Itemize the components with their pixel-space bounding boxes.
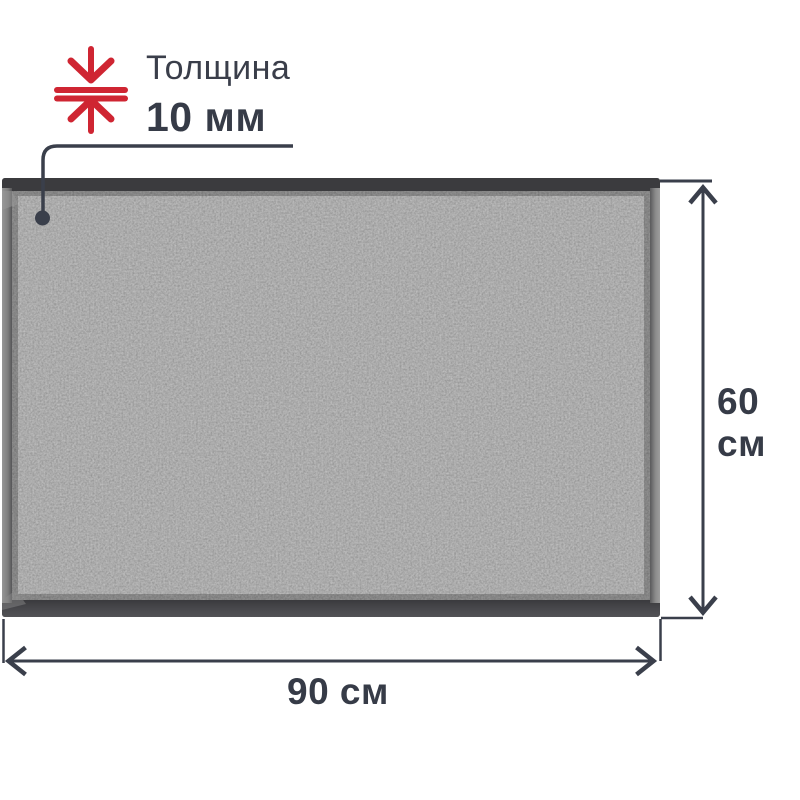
- mat-texture: [2, 178, 660, 617]
- product-dimension-diagram: Толщина 10 мм: [0, 0, 800, 800]
- compress-vertical-arrows-icon: [54, 46, 128, 134]
- mat-photo: [2, 178, 660, 617]
- thickness-icon-strokes: [57, 49, 125, 131]
- height-arrowhead-down: [690, 597, 716, 613]
- width-arrowhead-left: [9, 648, 26, 675]
- height-arrowhead-up: [690, 188, 716, 204]
- width-dimension-label: 90 см: [287, 671, 389, 713]
- height-dimension-label: 60 см: [717, 381, 800, 465]
- thickness-label: Толщина: [146, 49, 290, 88]
- thickness-value: 10 мм: [146, 94, 266, 141]
- width-arrowhead-right: [637, 648, 654, 675]
